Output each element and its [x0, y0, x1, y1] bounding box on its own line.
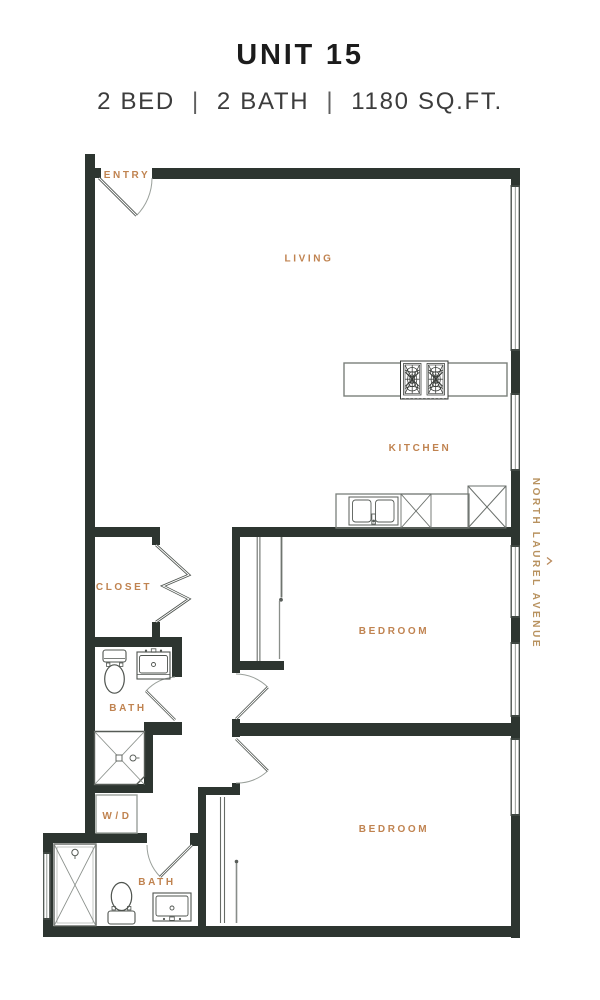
svg-text:BEDROOM: BEDROOM	[359, 626, 429, 637]
svg-text:NORTH LAUREL AVENUE: NORTH LAUREL AVENUE	[530, 478, 541, 649]
svg-text:ENTRY: ENTRY	[104, 170, 151, 181]
svg-text:BATH: BATH	[138, 877, 175, 888]
svg-text:KITCHEN: KITCHEN	[389, 443, 452, 454]
svg-text:BEDROOM: BEDROOM	[359, 824, 429, 835]
svg-text:CLOSET: CLOSET	[96, 582, 152, 593]
svg-text:BATH: BATH	[109, 703, 146, 714]
svg-text:LIVING: LIVING	[285, 254, 334, 265]
svg-text:W/D: W/D	[102, 811, 132, 822]
